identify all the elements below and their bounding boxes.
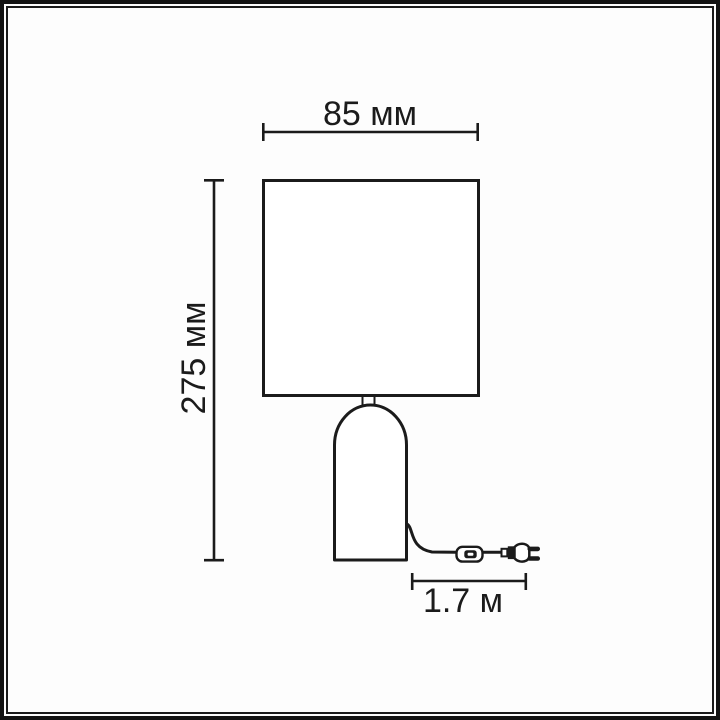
plug-cord-grip [502,549,508,557]
switch-button-slot [468,553,474,556]
plug-body [508,546,514,559]
lamp-dimension-diagram: 85 мм 275 мм [0,0,720,720]
cord-length-label: 1.7 м [423,582,503,620]
height-dimension-label: 275 мм [175,302,213,415]
lamp-drawing: 85 мм 275 мм [0,0,720,720]
lampshade-outline [264,181,479,396]
plug-shell [515,544,530,562]
power-cord [407,524,456,552]
inline-switch [457,547,483,562]
power-plug [502,544,541,562]
plug-prong-bottom [528,556,541,561]
width-dimension-label: 85 мм [323,95,417,133]
lamp-base-outline [335,405,407,560]
plug-prong-top [528,547,541,552]
